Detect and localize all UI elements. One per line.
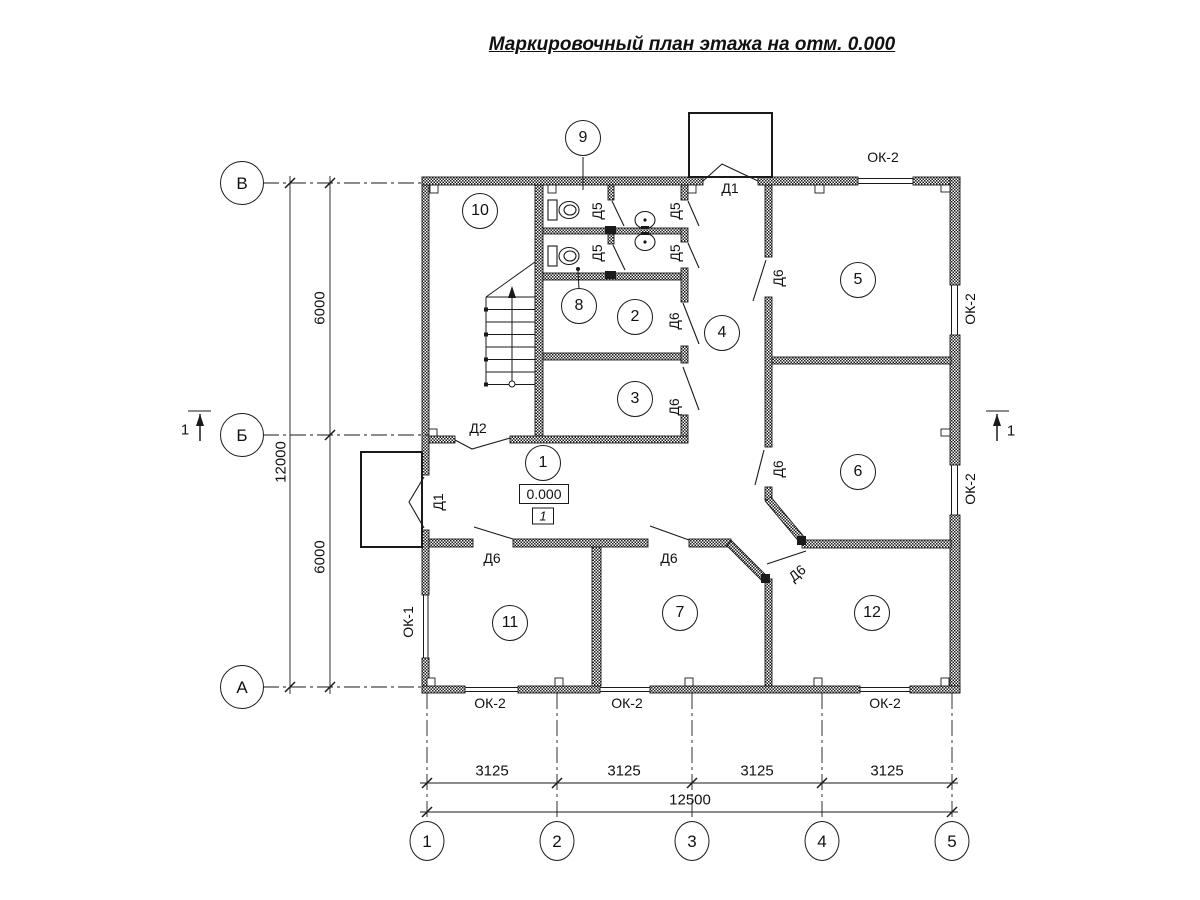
dim-row-total: 12000 bbox=[274, 441, 289, 483]
room-5-label: 5 bbox=[854, 272, 863, 288]
window-mark-ok2-top: ОК-2 bbox=[867, 150, 899, 164]
room-bubble-2: 2 bbox=[617, 299, 653, 335]
axis-col-2-label: 2 bbox=[552, 833, 561, 850]
room-bubble-10: 10 bbox=[462, 193, 498, 229]
axis-col-5-label: 5 bbox=[947, 833, 956, 850]
door-mark-d6-room11: Д6 bbox=[483, 551, 500, 565]
door-mark-d6-room3: Д6 bbox=[667, 398, 681, 415]
door-mark-d2: Д2 bbox=[469, 421, 486, 435]
axis-col-3: 3 bbox=[675, 821, 710, 861]
door-mark-d6-room2: Д6 bbox=[667, 312, 681, 329]
room-bubble-11: 11 bbox=[492, 605, 528, 641]
room-bubble-5: 5 bbox=[840, 262, 876, 298]
elevation-mark: 0.000 bbox=[519, 484, 569, 504]
room-7-label: 7 bbox=[676, 605, 685, 621]
door-mark-d5-wc1-inner: Д5 bbox=[590, 202, 604, 219]
door-mark-d1-entrance: Д1 bbox=[721, 181, 738, 195]
door-mark-d1-side: Д1 bbox=[431, 493, 445, 510]
room-bubble-6: 6 bbox=[840, 454, 876, 490]
dim-col-total: 12500 bbox=[669, 793, 711, 808]
dim-col-segment-3: 3125 bbox=[740, 764, 773, 779]
window-mark-ok2-right-2: ОК-2 bbox=[963, 473, 977, 505]
section-mark-left: 1 bbox=[181, 423, 189, 438]
room-6-label: 6 bbox=[854, 464, 863, 480]
floor-number-mark: 1 bbox=[532, 508, 554, 525]
dim-col-segment-4: 3125 bbox=[870, 764, 903, 779]
floor-plan-canvas: Маркировочный план этажа на отм. 0.000 В… bbox=[0, 0, 1200, 900]
floor-number: 1 bbox=[539, 510, 546, 523]
window-mark-ok2-right-1: ОК-2 bbox=[963, 293, 977, 325]
room-10-label: 10 bbox=[471, 203, 489, 219]
door-mark-d6-room7: Д6 bbox=[660, 551, 677, 565]
axis-row-b: Б bbox=[220, 413, 264, 457]
axis-row-v: В bbox=[220, 161, 264, 205]
room-bubble-4: 4 bbox=[704, 315, 740, 351]
room-1-label: 1 bbox=[539, 455, 548, 471]
door-mark-d5-wc2-inner: Д5 bbox=[590, 244, 604, 261]
room-bubble-7: 7 bbox=[662, 595, 698, 631]
axis-row-b-label: Б bbox=[236, 427, 247, 444]
dim-row-segment-2: 6000 bbox=[313, 540, 328, 573]
window-mark-ok2-bottom-2: ОК-2 bbox=[611, 696, 643, 710]
axis-row-a: А bbox=[220, 665, 264, 709]
axis-col-4-label: 4 bbox=[817, 833, 826, 850]
axis-col-5: 5 bbox=[935, 821, 970, 861]
axis-col-2: 2 bbox=[540, 821, 575, 861]
staircase bbox=[484, 262, 535, 387]
axis-row-a-label: А bbox=[236, 679, 247, 696]
axis-col-1: 1 bbox=[410, 821, 445, 861]
room-8-label: 8 bbox=[575, 298, 584, 314]
axis-row-v-label: В bbox=[236, 175, 247, 192]
room-bubble-8: 8 bbox=[561, 288, 597, 324]
room-bubble-9: 9 bbox=[565, 120, 601, 156]
room-9-label: 9 bbox=[579, 130, 588, 146]
dim-row-segment-1: 6000 bbox=[313, 291, 328, 324]
axis-col-3-label: 3 bbox=[687, 833, 696, 850]
room-4-label: 4 bbox=[718, 325, 727, 341]
drawing-title: Маркировочный план этажа на отм. 0.000 bbox=[489, 34, 896, 56]
room-2-label: 2 bbox=[631, 309, 640, 325]
room-bubble-3: 3 bbox=[617, 381, 653, 417]
room-3-label: 3 bbox=[631, 391, 640, 407]
elevation-value: 0.000 bbox=[526, 487, 561, 501]
axis-col-1-label: 1 bbox=[422, 833, 431, 850]
door-mark-d5-wc1-outer: Д5 bbox=[668, 202, 682, 219]
door-mark-d6-room6: Д6 bbox=[771, 460, 785, 477]
dim-col-segment-1: 3125 bbox=[475, 764, 508, 779]
room-11-label: 11 bbox=[502, 615, 519, 631]
window-mark-ok2-bottom-3: ОК-2 bbox=[869, 696, 901, 710]
axis-col-4: 4 bbox=[805, 821, 840, 861]
window-mark-ok2-bottom-1: ОК-2 bbox=[474, 696, 506, 710]
section-mark-right: 1 bbox=[1007, 424, 1015, 439]
window-mark-ok1-left: ОК-1 bbox=[401, 606, 415, 638]
door-mark-d5-wc2-outer: Д5 bbox=[668, 244, 682, 261]
room-bubble-1: 1 bbox=[525, 445, 561, 481]
room-bubble-12: 12 bbox=[854, 595, 890, 631]
door-mark-d6-room5: Д6 bbox=[771, 269, 785, 286]
dim-col-segment-2: 3125 bbox=[607, 764, 640, 779]
room-12-label: 12 bbox=[863, 605, 881, 621]
